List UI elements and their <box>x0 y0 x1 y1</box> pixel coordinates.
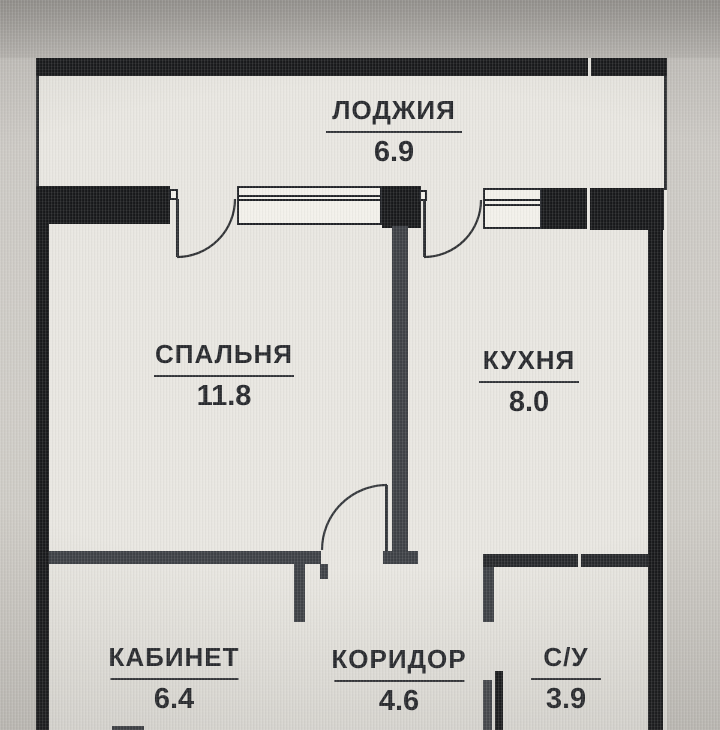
room-underline <box>326 131 462 133</box>
wall-loggia-left <box>36 76 39 188</box>
bedroom-window-mullion <box>239 195 380 197</box>
wall-top-exterior <box>36 58 667 76</box>
wall-loggia-band-left <box>36 186 170 224</box>
room-area: 11.8 <box>197 381 252 413</box>
room-underline <box>334 680 464 682</box>
bathroom-door-leaf <box>495 671 503 730</box>
room-name: КАБИНЕТ <box>108 643 239 672</box>
room-label-kitchen: КУХНЯ 8.0 <box>479 346 579 419</box>
bedroom-window-mullion <box>239 199 380 201</box>
wall-bathroom-left-lower <box>483 680 492 730</box>
bedroom-door-jamb-stub <box>320 564 328 579</box>
wall-loggia-band-right-a <box>542 188 587 229</box>
kitchen-balcony-door-leaf <box>423 200 426 257</box>
room-area: 6.9 <box>374 137 414 169</box>
room-label-corridor: КОРИДОР 4.6 <box>331 645 466 718</box>
floorplan-photo: ЛОДЖИЯ 6.9 СПАЛЬНЯ 11.8 КУХНЯ 8.0 КАБИНЕ… <box>0 0 720 730</box>
kitchen-window-mullion <box>485 199 540 201</box>
bedroom-balcony-door-leaf <box>176 199 179 257</box>
room-area: 8.0 <box>509 387 549 419</box>
wall-loggia-band-pier <box>382 186 421 228</box>
room-label-loggia: ЛОДЖИЯ 6.9 <box>326 96 462 169</box>
room-name: С/У <box>543 643 588 672</box>
room-area: 3.9 <box>546 684 586 716</box>
wall-right-exterior <box>648 228 663 730</box>
room-underline <box>154 375 294 377</box>
kitchen-window-mullion <box>485 204 540 206</box>
room-name: СПАЛЬНЯ <box>155 340 293 369</box>
wall-lower-horizontal-left <box>49 551 321 564</box>
photo-top-shading <box>0 0 720 58</box>
wall-bathroom-top-seam <box>578 554 581 567</box>
wall-bathroom-left-stub <box>483 567 494 622</box>
room-underline <box>531 678 601 680</box>
wall-bathroom-top <box>483 554 648 567</box>
room-name: КУХНЯ <box>483 346 576 375</box>
wall-loggia-band-right-b <box>590 188 664 230</box>
wall-left-exterior <box>36 224 49 730</box>
bedroom-door-leaf <box>385 485 388 551</box>
bedroom-window <box>237 186 382 225</box>
room-underline <box>110 678 238 680</box>
room-label-bathroom: С/У 3.9 <box>531 643 601 716</box>
wall-partition-foot <box>383 551 418 564</box>
room-area: 4.6 <box>379 686 419 718</box>
wall-top-seam <box>588 58 591 76</box>
wall-cabinet-corridor-stub <box>294 564 305 622</box>
room-area: 6.4 <box>154 684 194 716</box>
kitchen-window <box>483 188 542 229</box>
room-name: КОРИДОР <box>331 645 466 674</box>
room-label-bedroom: СПАЛЬНЯ 11.8 <box>154 340 294 413</box>
wall-loggia-right <box>664 76 667 190</box>
wall-bedroom-kitchen-partition <box>392 226 408 552</box>
room-label-cabinet: КАБИНЕТ 6.4 <box>108 643 239 716</box>
room-underline <box>479 381 579 383</box>
wall-bottom-edge-sliver <box>112 726 144 730</box>
room-name: ЛОДЖИЯ <box>332 96 456 125</box>
